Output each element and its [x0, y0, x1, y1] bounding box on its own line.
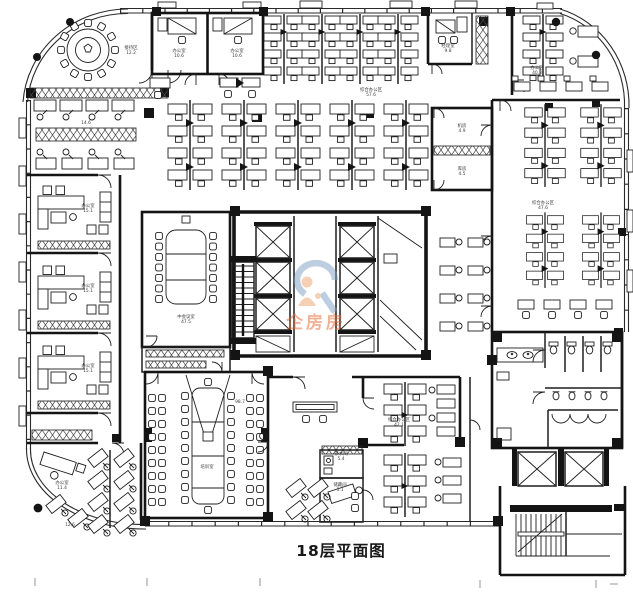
southeast-stairs: [510, 505, 622, 556]
right-open-office: [440, 104, 621, 331]
room-label: 12.6: [65, 522, 75, 528]
storage-room: [142, 347, 230, 372]
left-offices: [27, 175, 120, 443]
room-label: 培训室: [200, 463, 214, 470]
room-label: 14.6: [81, 120, 91, 126]
watermark-figure-body: [298, 298, 316, 307]
room-label: 办公室11.4: [55, 479, 69, 491]
watermark-swirl: [297, 263, 335, 294]
southwest-bay: [27, 443, 141, 536]
watermark-text: 企房房: [285, 312, 346, 333]
room-label: 办公区40.3: [530, 64, 544, 76]
floor-plan-drawing: 企房房 接待区12.2办公室10.6办公室10.6经理室9.8综合办公区57.6…: [0, 0, 633, 599]
room-label: 办公室10.6: [230, 47, 244, 59]
room-label: 办公室15.1: [81, 202, 95, 214]
room-label: 中会议室47.5: [177, 313, 195, 325]
left-top-open-area: [34, 100, 136, 169]
conference-room: [142, 212, 230, 347]
central-open-office: [168, 100, 428, 190]
top-offices: [150, 13, 263, 98]
elevator-core: [230, 212, 426, 356]
room-label: 机房4.9: [458, 122, 467, 134]
room-label: 茶水间5.4: [334, 450, 347, 462]
room-label: 98.7: [235, 399, 245, 405]
room-label: 经理室9.8: [441, 42, 455, 54]
washrooms: [492, 332, 622, 448]
southeast-core: [510, 448, 622, 556]
top-right-open-office: [492, 13, 620, 111]
room-label: 办公室15.1: [81, 362, 95, 374]
drawing-title: 18层平面图: [296, 542, 386, 560]
bottom-middle-zone: [268, 377, 480, 522]
watermark-figure-head: [302, 277, 313, 288]
dimension-ticks: [35, 578, 618, 588]
floor-plan-page: 企房房 接待区12.2办公室10.6办公室10.6经理室9.8综合办公区57.6…: [0, 0, 633, 599]
training-room: [145, 372, 268, 518]
room-label: 办公室10.6: [172, 47, 186, 59]
room-label: 综合办公区57.6: [360, 86, 383, 98]
room-label: 库房4.5: [458, 165, 467, 177]
room-label: 接待区12.2: [124, 44, 138, 56]
room-label: 综合办公区47.6: [532, 199, 555, 211]
room-label: 办公室15.1: [81, 282, 95, 294]
